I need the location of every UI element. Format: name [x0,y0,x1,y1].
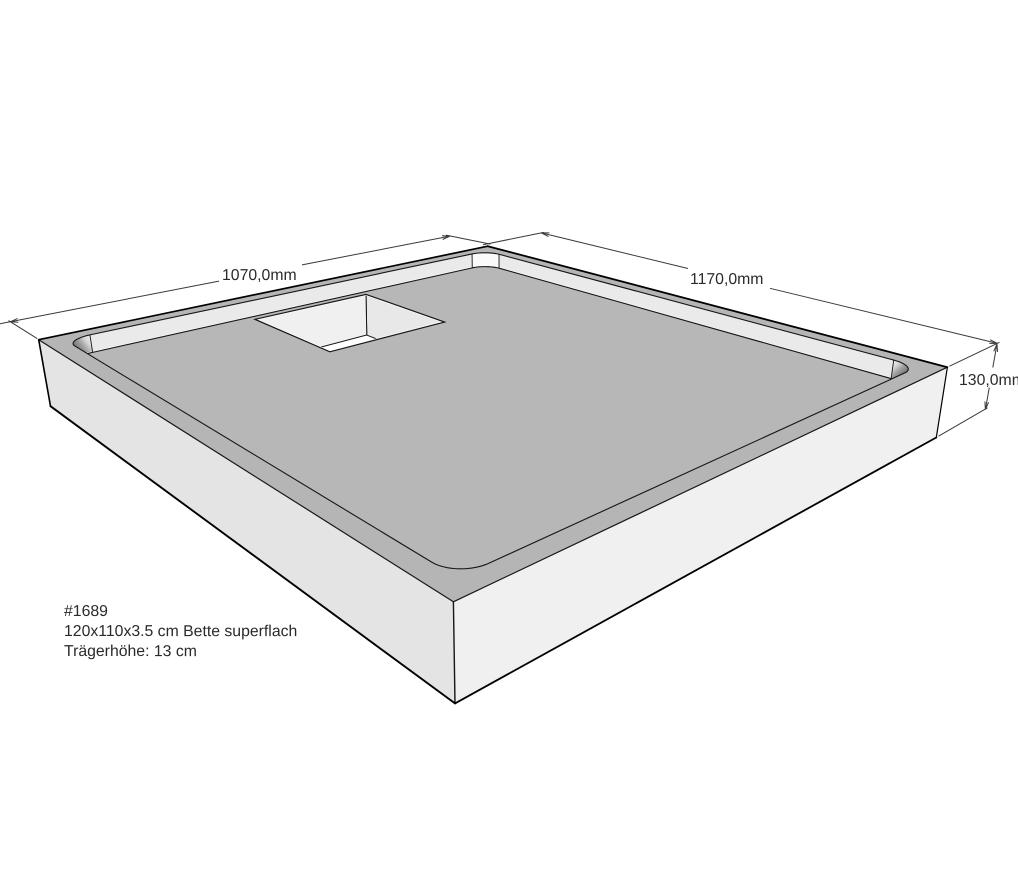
svg-text:1170,0mm: 1170,0mm [690,271,763,288]
svg-text:1070,0mm: 1070,0mm [222,267,297,284]
svg-text:#1689: #1689 [64,603,108,620]
svg-text:Trägerhöhe: 13 cm: Trägerhöhe: 13 cm [64,643,197,660]
svg-text:130,0mm: 130,0mm [959,372,1018,389]
svg-text:120x110x3.5 cm Bette superflac: 120x110x3.5 cm Bette superflach [64,623,297,640]
